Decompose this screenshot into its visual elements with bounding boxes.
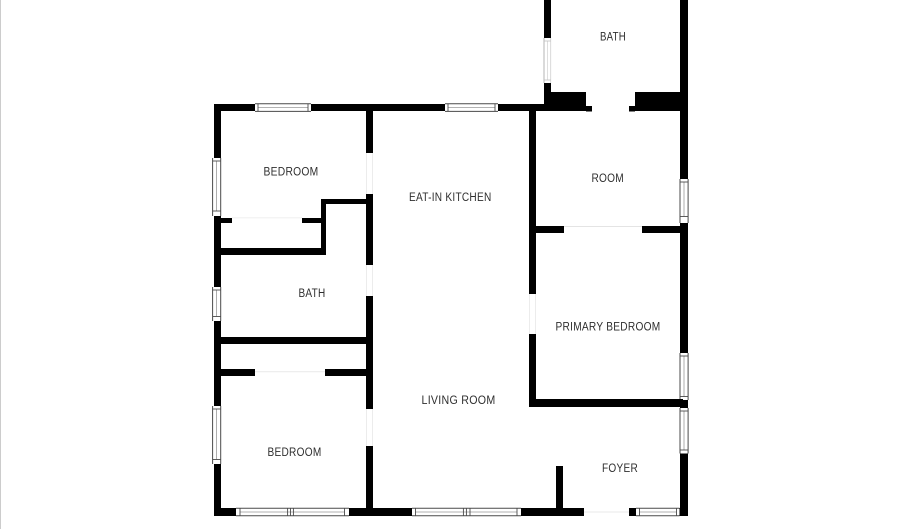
svg-text:FOYER: FOYER [602,463,638,475]
svg-text:EAT-IN KITCHEN: EAT-IN KITCHEN [409,192,492,204]
svg-text:BEDROOM: BEDROOM [264,167,319,179]
svg-text:BEDROOM: BEDROOM [268,447,322,459]
svg-text:ROOM: ROOM [592,173,625,185]
svg-text:BATH: BATH [600,32,626,44]
svg-text:PRIMARY BEDROOM: PRIMARY BEDROOM [556,321,661,333]
svg-text:LIVING ROOM: LIVING ROOM [422,395,496,407]
svg-text:BATH: BATH [299,288,326,300]
